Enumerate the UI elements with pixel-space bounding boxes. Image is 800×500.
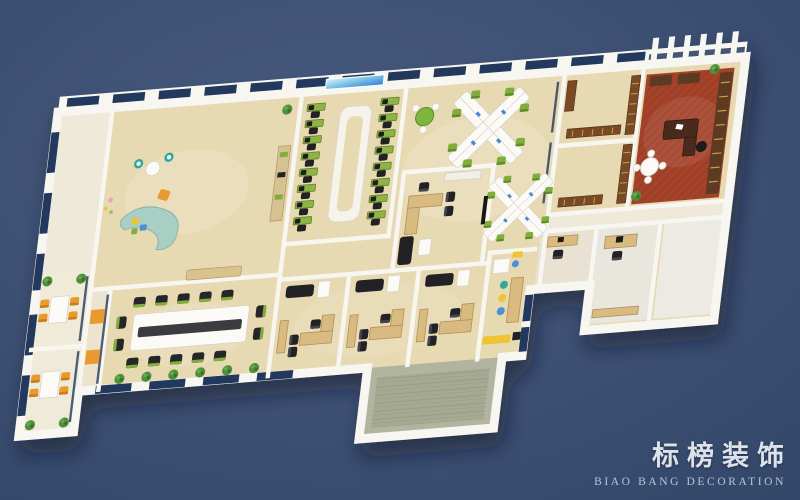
floor-plan-rendering bbox=[0, 0, 800, 500]
watermark-english: BIAO BANG DECORATION bbox=[594, 476, 786, 488]
watermark-chinese: 标榜装饰 bbox=[594, 434, 792, 473]
watermark: 标榜装饰 BIAO BANG DECORATION bbox=[594, 434, 784, 488]
rendering-stage: 标榜装饰 BIAO BANG DECORATION bbox=[0, 0, 800, 500]
